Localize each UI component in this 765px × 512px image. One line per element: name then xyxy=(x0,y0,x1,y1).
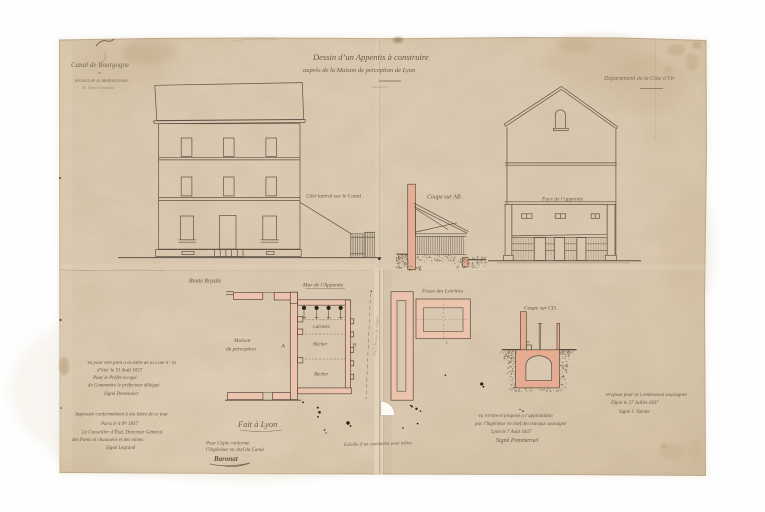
svg-text:Bûcher: Bûcher xyxy=(313,343,327,348)
svg-text:Pour le Préfet occupé: Pour le Préfet occupé xyxy=(92,376,138,381)
svg-text:Canal de Bourgogne: Canal de Bourgogne xyxy=(71,61,129,69)
svg-text:Face de l’appentis: Face de l’appentis xyxy=(541,197,583,203)
svg-text:approuvé le: approuvé le xyxy=(372,85,389,89)
svg-text:Maison: Maison xyxy=(233,338,251,344)
svg-text:Approuvé conformément à ma let: Approuvé conformément à ma lettre de ce … xyxy=(74,413,168,418)
svg-text:Versant de la Méditerranée: Versant de la Méditerranée xyxy=(74,79,129,84)
svg-text:d’hier le 31 Août 1837: d’hier le 31 Août 1837 xyxy=(97,369,143,374)
svg-text:Vu Vérifié et proposé à l’appr: Vu Vérifié et proposé à l’approbation xyxy=(478,414,553,419)
svg-text:de perception: de perception xyxy=(226,347,256,353)
svg-text:Mur de l’Appentis: Mur de l’Appentis xyxy=(302,283,343,289)
svg-text:Coupe sur AB .: Coupe sur AB . xyxy=(427,195,464,201)
svg-text:A: A xyxy=(281,344,286,350)
svg-text:Dijon le 27 Juillet 1837: Dijon le 27 Juillet 1837 xyxy=(610,401,659,406)
svg-text:Département de la Côte d’Or: Département de la Côte d’Or xyxy=(603,76,675,82)
svg-text:Lyon le 7 Août 1837: Lyon le 7 Août 1837 xyxy=(490,430,532,435)
svg-text:Signé J. Valette: Signé J. Valette xyxy=(619,410,650,415)
svg-text:Signé Legrand: Signé Legrand xyxy=(106,446,136,451)
svg-text:Signé Pommeruel: Signé Pommeruel xyxy=(496,438,539,444)
svg-text:Paris le 4 8ᵇᵉ 1837: Paris le 4 8ᵇᵉ 1837 xyxy=(100,421,139,427)
svg-text:Côté latéral sur le Canal .: Côté latéral sur le Canal . xyxy=(306,194,364,200)
svg-text:Vu pour être joint à la lettre: Vu pour être joint à la lettre de la Cot… xyxy=(87,361,176,366)
svg-text:Signé Demeunier: Signé Demeunier xyxy=(104,392,139,397)
svg-text:Fosse des Latrines .: Fosse des Latrines . xyxy=(421,289,466,295)
svg-text:par l’Ingénieur en chef des tr: par l’Ingénieur en chef des travaux sous… xyxy=(474,422,567,427)
svg-text:Proposé pour la Commission sou: Proposé pour la Commission soussignée xyxy=(605,393,688,398)
svg-text:Le Conseiller d’État, Directeu: Le Conseiller d’État, Directeur Général xyxy=(81,430,163,436)
svg-text:Baronat: Baronat xyxy=(213,455,239,463)
svg-text:Bûcher: Bûcher xyxy=(314,373,328,378)
svg-text:de Commettre le préfecteur dél: de Commettre le préfecteur délégué xyxy=(88,384,160,389)
svg-text:des Ponts et chaussées et des: des Ponts et chaussées et des mines xyxy=(72,438,143,443)
svg-text:l’Ingénieur en chef du Canal: l’Ingénieur en chef du Canal xyxy=(206,448,264,453)
svg-text:Pour Copie conforme: Pour Copie conforme xyxy=(205,442,250,447)
svg-text:Latrines: Latrines xyxy=(312,325,330,330)
svg-text:M. Dijon Chanoine: M. Dijon Chanoine xyxy=(81,85,115,90)
svg-text:Fait à Lyon: Fait à Lyon xyxy=(237,419,277,429)
svg-text:Dessin d’un Appentis à constru: Dessin d’un Appentis à construire xyxy=(312,52,429,62)
svg-text:auprès de la Maison de percept: auprès de la Maison de perception de Lyo… xyxy=(303,67,415,74)
svg-text:Coupe sur CD .: Coupe sur CD . xyxy=(524,306,559,312)
svg-text:Route Royale: Route Royale xyxy=(188,279,221,285)
